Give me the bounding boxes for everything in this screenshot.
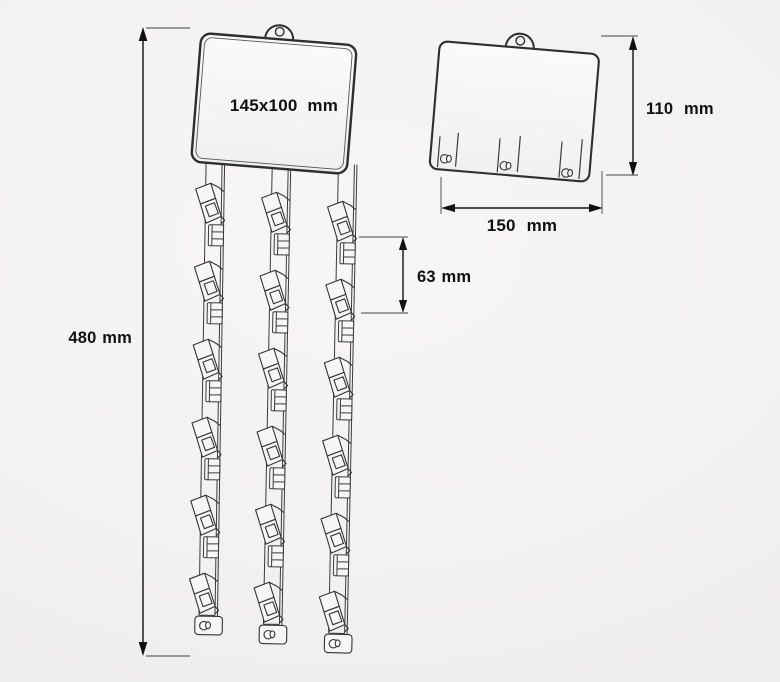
sign-size-label: 145x100 mm — [213, 96, 355, 116]
ladder-window-icon — [270, 468, 285, 489]
back-plate-width-label: 150 mm — [461, 216, 583, 236]
back-header-plate — [429, 27, 600, 182]
end-tab-icon — [195, 616, 223, 635]
ladder-window-icon — [340, 243, 355, 264]
ladder-window-icon — [273, 312, 288, 333]
back-plate-height-label: 110 mm — [646, 100, 714, 119]
dimension-63mm — [359, 237, 408, 313]
ladder-window-icon — [206, 381, 221, 402]
hanging-strip-1 — [189, 154, 230, 635]
ladder-window-icon — [338, 321, 353, 342]
ladder-window-icon — [333, 555, 348, 576]
hang-hole-icon — [516, 36, 525, 45]
ladder-window-icon — [271, 390, 286, 411]
hang-hole-icon — [275, 27, 284, 36]
hanging-strip-2 — [253, 159, 296, 644]
ladder-window-icon — [203, 537, 218, 558]
ladder-window-icon — [208, 225, 223, 246]
ladder-window-icon — [337, 399, 352, 420]
dimension-110mm — [601, 36, 638, 176]
ladder-window-icon — [207, 303, 222, 324]
end-tab-icon — [324, 634, 352, 653]
total-height-label: 480 mm — [52, 329, 132, 348]
drawing-canvas: 145x100 mm 480 mm 63 mm 110 mm 150 mm — [0, 0, 780, 682]
ladder-window-icon — [205, 459, 220, 480]
ladder-window-icon — [274, 234, 289, 255]
ladder-window-icon — [335, 477, 350, 498]
clip-spacing-label: 63 mm — [417, 268, 471, 287]
dimension-480mm — [139, 27, 190, 656]
ladder-window-icon — [268, 546, 283, 567]
back-view — [429, 27, 638, 214]
end-tab-icon — [259, 625, 287, 644]
hanging-strip-3 — [318, 164, 362, 653]
